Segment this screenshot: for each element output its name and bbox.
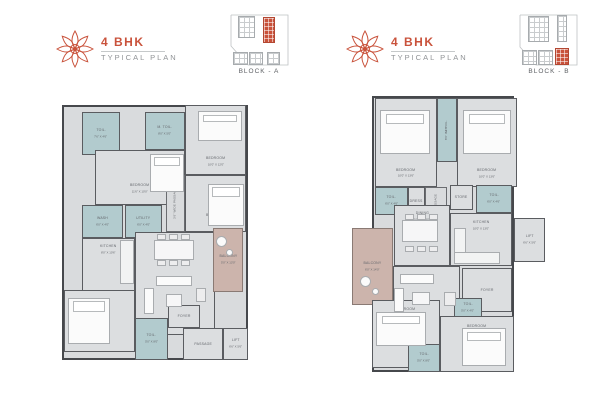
room-m-toil-: M. TOIL.8'0" X 5'0" xyxy=(145,112,185,150)
brand-block-a: 4 BHK TYPICAL PLAN xyxy=(55,28,178,70)
chair-furniture xyxy=(196,288,206,302)
room-label: TOIL.7'6" X 4'6" xyxy=(83,113,119,154)
sofa-furniture xyxy=(156,276,192,286)
room-toil-: TOIL.5'0" X 8'0" xyxy=(408,344,440,372)
room-label: PASSAGE xyxy=(184,329,222,359)
keyplan-building xyxy=(233,52,248,65)
room-passage: PASSAGE xyxy=(183,328,223,360)
room-toil-: TOIL.6'0" X 4'6" xyxy=(476,185,512,213)
lotus-logo-icon xyxy=(55,28,95,70)
plant-furniture xyxy=(216,236,227,247)
table-furniture xyxy=(154,240,194,260)
room-m-toil-: M. TOIL.8'6" X 4'6" xyxy=(437,98,457,162)
keyplan-highlighted-building xyxy=(263,17,275,43)
room-toil-: TOIL.5'0" X 4'0" xyxy=(454,298,482,318)
room-foyer: FOYER xyxy=(168,305,200,328)
keyplan-building xyxy=(522,50,537,65)
room-label: M. TOIL.8'6" X 4'6" xyxy=(438,99,456,161)
floor-plan-sheet: { "colors": { "accent": "#c9523b", "wall… xyxy=(0,0,600,400)
floor-plan-block-b: BEDROOM10'0" X 13'6"M. TOIL.8'6" X 4'6"B… xyxy=(348,88,548,378)
plan-subtitle: TYPICAL PLAN xyxy=(391,54,468,62)
sofa-furniture xyxy=(400,274,434,284)
chair-furniture xyxy=(157,234,166,240)
room-toil-: TOIL.7'6" X 4'6" xyxy=(82,112,120,155)
table-furniture xyxy=(412,292,430,305)
table-furniture xyxy=(166,294,182,307)
floor-plan-block-a: TOIL.7'6" X 4'6"M. TOIL.8'0" X 5'0"BEDRO… xyxy=(58,92,250,364)
room-label: TOIL.6'0" X 4'6" xyxy=(477,186,511,212)
chair-furniture xyxy=(429,246,438,252)
room-label: M. TOIL.8'0" X 5'0" xyxy=(146,113,184,149)
chair-furniture xyxy=(417,246,426,252)
room-label: TOIL.5'0" X 8'0" xyxy=(136,319,167,359)
keyplan-block-b xyxy=(518,14,580,66)
room-lift: LIFT6'6" X 5'6" xyxy=(514,218,545,262)
room-store: STORE xyxy=(450,185,473,210)
chair-furniture xyxy=(417,214,426,220)
room-label: TOIL.5'0" X 4'0" xyxy=(455,299,481,317)
room-label: LIFT6'6" X 5'6" xyxy=(224,329,247,359)
chair-furniture xyxy=(181,260,190,266)
chair-furniture xyxy=(405,214,414,220)
chair-furniture xyxy=(429,214,438,220)
counter-furniture xyxy=(454,252,500,264)
bed-furniture xyxy=(462,328,506,366)
room-label: TOIL.5'0" X 8'0" xyxy=(409,345,439,371)
plant-furniture xyxy=(372,288,379,295)
table-furniture xyxy=(402,220,438,242)
room-lift: LIFT6'6" X 5'6" xyxy=(223,328,248,360)
room-label: STORE xyxy=(451,186,472,209)
keyplan-building xyxy=(538,50,553,65)
room-label: LIFT6'6" X 5'6" xyxy=(515,219,544,261)
divider xyxy=(101,51,165,52)
bed-pillow xyxy=(469,114,506,124)
block-a-label: BLOCK - A xyxy=(228,68,290,75)
bed-furniture xyxy=(150,154,184,192)
bed-pillow xyxy=(467,332,501,341)
lotus-logo-icon xyxy=(345,28,385,70)
chair-furniture xyxy=(444,292,456,306)
block-b-label: BLOCK - B xyxy=(518,68,580,75)
sofa-furniture xyxy=(394,288,404,312)
bed-pillow xyxy=(203,115,237,123)
keyplan-building xyxy=(557,15,567,42)
chair-furniture xyxy=(181,234,190,240)
brand-block-b: 4 BHK TYPICAL PLAN xyxy=(345,28,468,70)
room-wash: WASH6'0" X 4'0" xyxy=(82,205,123,238)
room-label: WASH6'0" X 4'0" xyxy=(83,206,122,237)
bed-furniture xyxy=(208,184,244,226)
chair-furniture xyxy=(169,260,178,266)
bed-furniture xyxy=(68,298,110,344)
bed-pillow xyxy=(212,187,239,197)
divider xyxy=(391,51,455,52)
chair-furniture xyxy=(405,246,414,252)
room-label: FOYER xyxy=(169,306,199,327)
chair-furniture xyxy=(157,260,166,266)
bed-furniture xyxy=(380,110,430,154)
keyplan-building xyxy=(267,52,280,65)
bed-furniture xyxy=(463,110,511,154)
keyplan-building xyxy=(528,16,549,42)
bed-pillow xyxy=(382,316,420,324)
room-toil-: TOIL.5'0" X 8'0" xyxy=(135,318,168,360)
plan-title: 4 BHK xyxy=(391,36,468,49)
keyplan-building xyxy=(249,52,263,65)
plant-furniture xyxy=(360,276,371,287)
bed-furniture xyxy=(198,111,242,141)
keyplan-highlighted-building xyxy=(555,48,569,65)
plan-subtitle: TYPICAL PLAN xyxy=(101,54,178,62)
keyplan-building xyxy=(238,16,255,38)
plant-furniture xyxy=(226,249,233,256)
sofa-furniture xyxy=(144,288,154,314)
bed-furniture xyxy=(376,312,426,346)
bed-pillow xyxy=(154,157,180,166)
plan-title: 4 BHK xyxy=(101,36,178,49)
keyplan-block-a xyxy=(228,14,290,66)
bed-pillow xyxy=(73,301,105,312)
chair-furniture xyxy=(169,234,178,240)
bed-pillow xyxy=(386,114,424,124)
counter-furniture xyxy=(120,240,134,284)
